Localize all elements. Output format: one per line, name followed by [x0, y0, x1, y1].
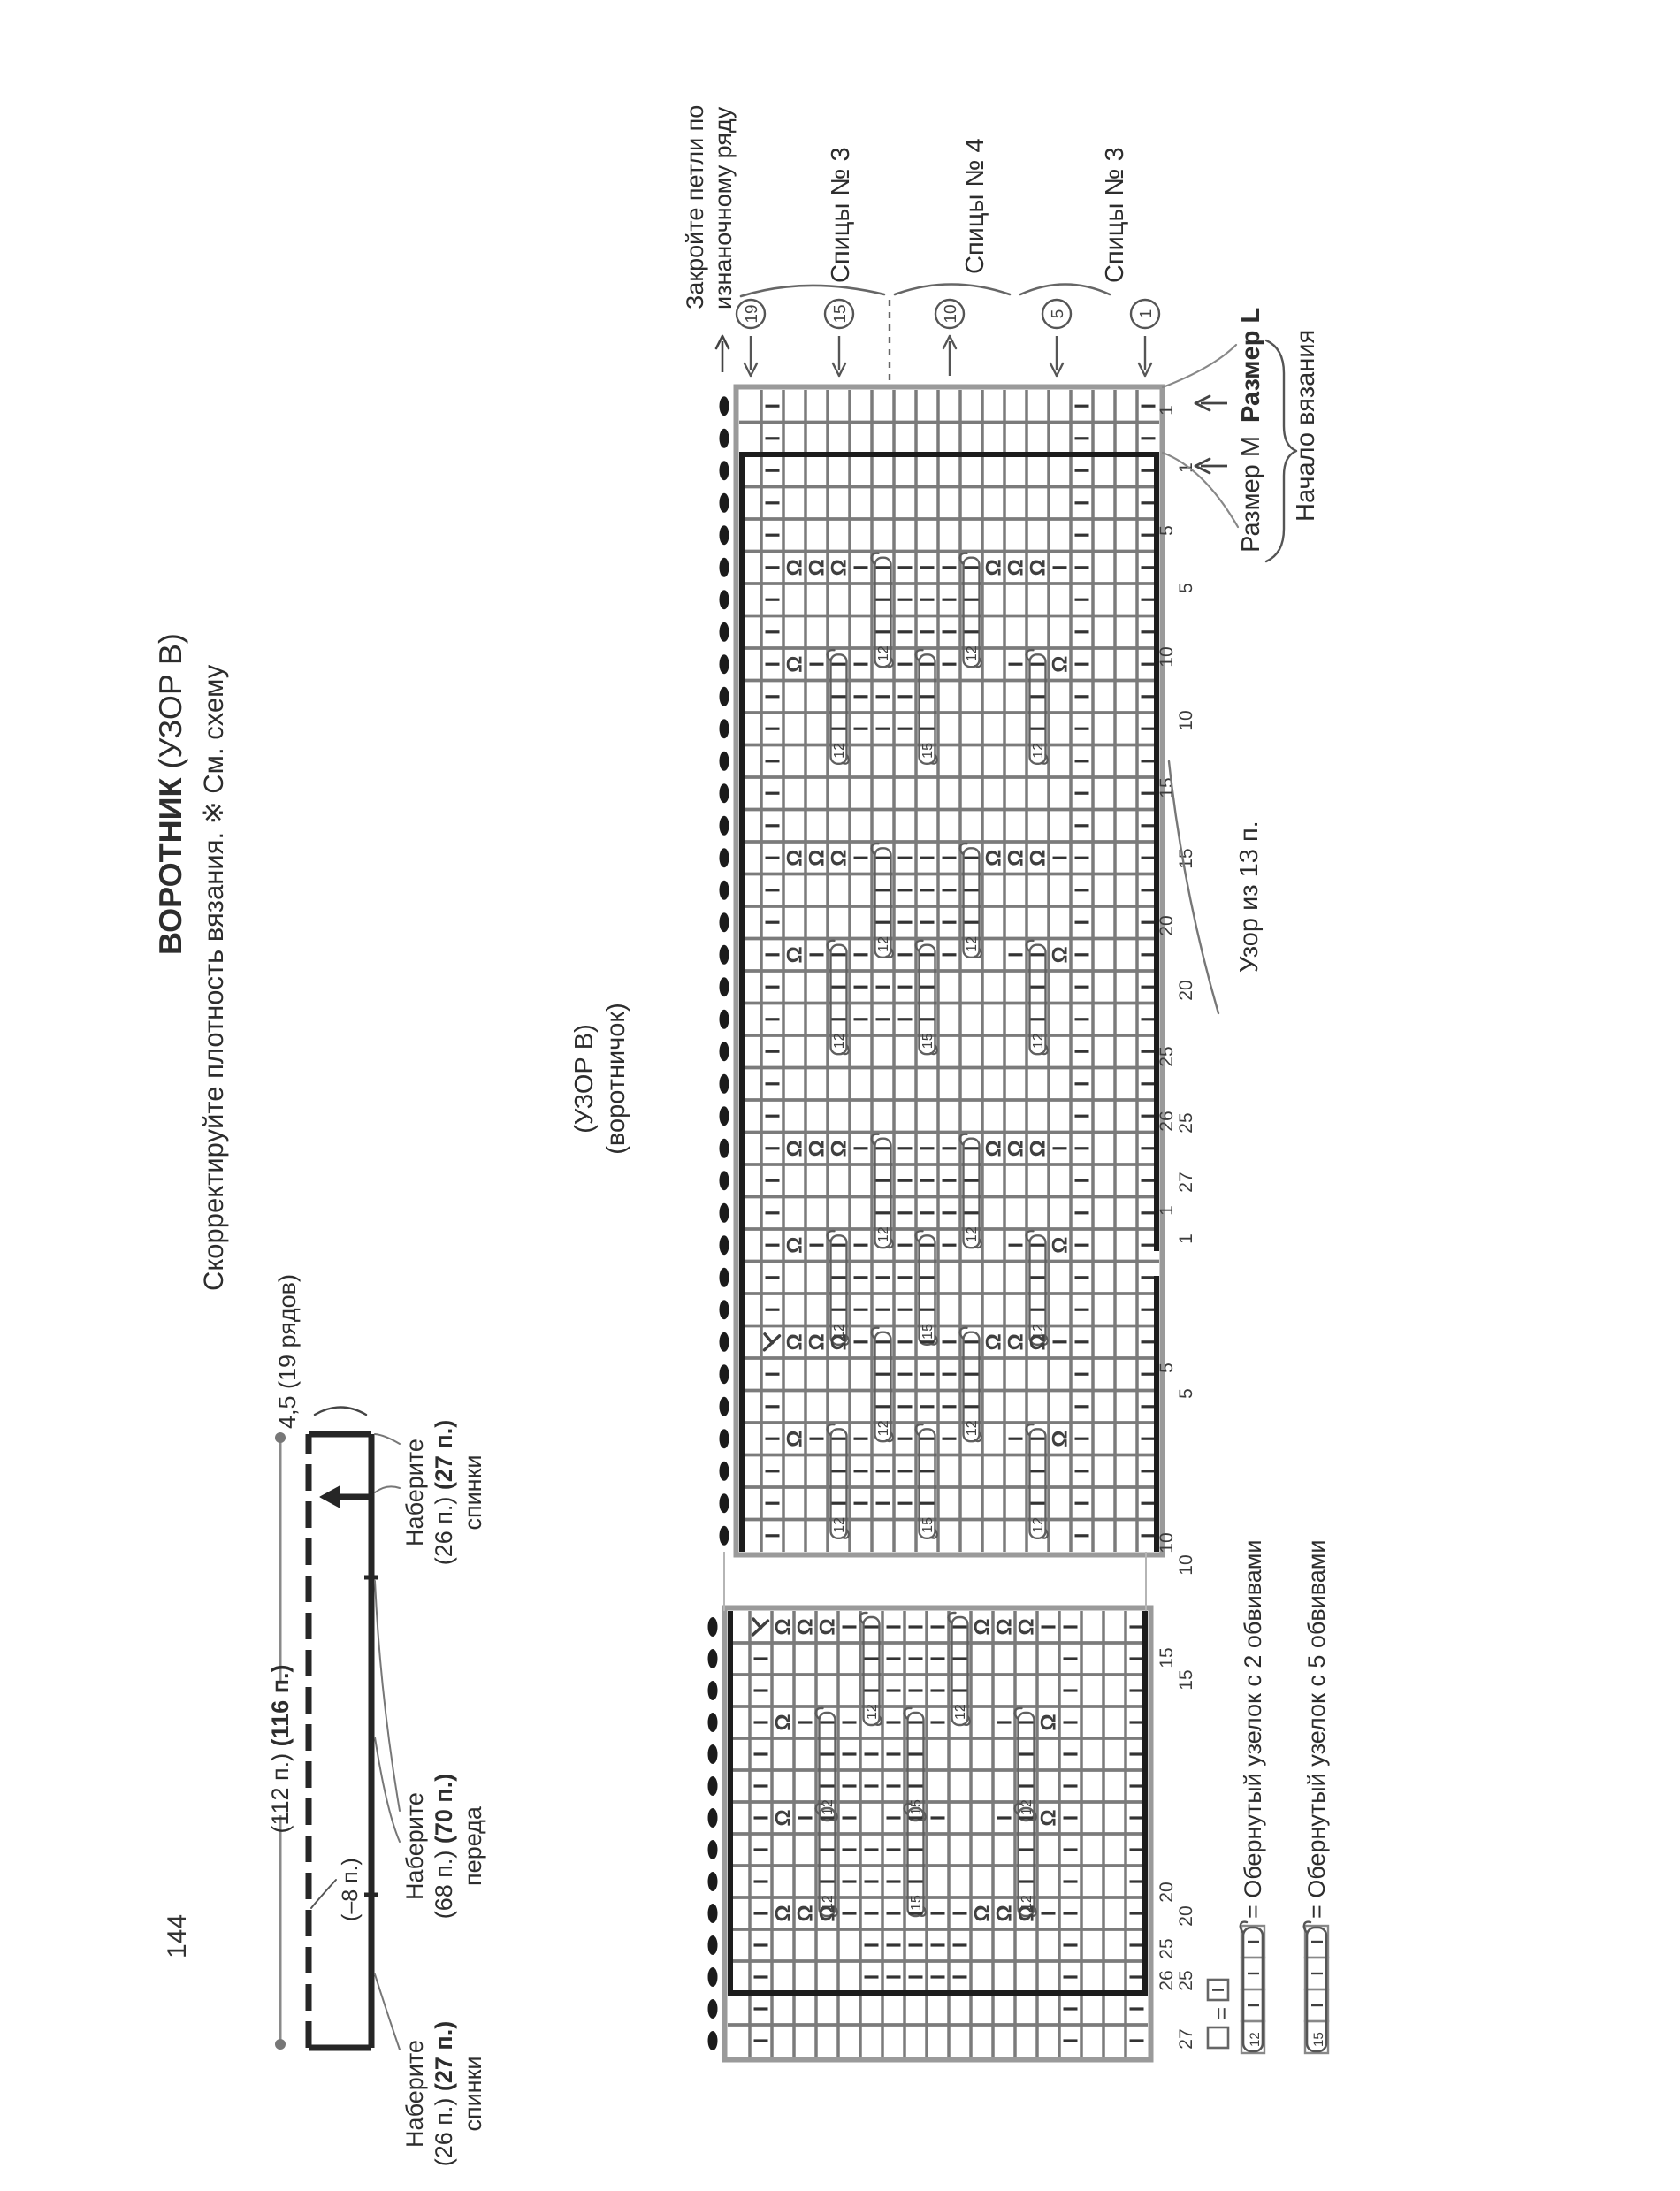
svg-text:15: 15 — [909, 1895, 924, 1911]
svg-text:Ω: Ω — [783, 1333, 807, 1350]
svg-text:Ω: Ω — [783, 1140, 807, 1157]
svg-text:12: 12 — [832, 1517, 847, 1533]
svg-text:Ω: Ω — [1049, 656, 1073, 673]
svg-text:Ω: Ω — [1049, 1237, 1073, 1254]
svg-text:Ω: Ω — [806, 559, 829, 576]
svg-text:Ω: Ω — [828, 850, 851, 866]
svg-text:Ω: Ω — [816, 1905, 840, 1921]
svg-text:12: 12 — [965, 1420, 980, 1436]
svg-text:12: 12 — [832, 743, 847, 759]
svg-text:19: 19 — [743, 304, 761, 323]
svg-text:Ω: Ω — [971, 1618, 995, 1635]
svg-text:15: 15 — [920, 1517, 935, 1533]
svg-text:(26 п.) (27 п.): (26 п.) (27 п.) — [431, 2021, 457, 2166]
svg-text:10: 10 — [1157, 646, 1177, 667]
svg-text:Ω: Ω — [971, 1905, 995, 1921]
svg-text:10: 10 — [1157, 1532, 1177, 1553]
svg-text:Ω: Ω — [1037, 1714, 1061, 1730]
svg-text:= Обернутый узелок с 5 обвивам: = Обернутый узелок с 5 обвивами — [1303, 1540, 1330, 1919]
svg-text:Ω: Ω — [806, 850, 829, 866]
svg-text:Ω: Ω — [1027, 1140, 1050, 1157]
svg-text:(воротничок): (воротничок) — [602, 1003, 630, 1155]
svg-text:4,5 (19 рядов): 4,5 (19 рядов) — [274, 1274, 301, 1429]
svg-text:Ω: Ω — [783, 946, 807, 963]
svg-text:Ω: Ω — [794, 1905, 818, 1921]
svg-text:12: 12 — [953, 1704, 968, 1720]
svg-text:Ω: Ω — [1049, 946, 1073, 963]
svg-text:Ω: Ω — [772, 1809, 796, 1826]
svg-text:25: 25 — [1157, 1046, 1177, 1066]
svg-text:(26 п.) (27 п.): (26 п.) (27 п.) — [431, 1420, 457, 1565]
svg-text:25: 25 — [1176, 1970, 1196, 1990]
svg-text:5: 5 — [1176, 583, 1196, 593]
svg-text:Узор из 13 п.: Узор из 13 п. — [1235, 821, 1264, 973]
svg-text:= Обернутый узелок с 2 обвивам: = Обернутый узелок с 2 обвивами — [1240, 1540, 1266, 1919]
svg-text:12: 12 — [1031, 743, 1046, 759]
svg-text:15: 15 — [920, 743, 935, 759]
svg-text:Ω: Ω — [783, 850, 807, 866]
svg-text:спинки: спинки — [460, 1454, 486, 1530]
svg-text:5: 5 — [1157, 1363, 1177, 1373]
svg-text:12: 12 — [1031, 1033, 1046, 1049]
svg-text:15: 15 — [831, 304, 850, 323]
svg-text:Ω: Ω — [806, 1333, 829, 1350]
svg-text:26: 26 — [1157, 1111, 1177, 1131]
svg-text:Ω: Ω — [1027, 559, 1050, 576]
svg-text:20: 20 — [1157, 915, 1177, 935]
svg-text:Ω: Ω — [816, 1618, 840, 1635]
svg-text:144: 144 — [163, 1914, 192, 1958]
svg-text:15: 15 — [1176, 1669, 1196, 1690]
svg-text:10: 10 — [942, 304, 960, 323]
svg-text:26: 26 — [1157, 1970, 1177, 1990]
svg-text:Ω: Ω — [1015, 1618, 1039, 1635]
svg-text:Ω: Ω — [1049, 1431, 1073, 1447]
svg-text:Ω: Ω — [982, 850, 1006, 866]
svg-text:ВОРОТНИК (УЗОР В): ВОРОТНИК (УЗОР В) — [152, 633, 188, 955]
svg-text:12: 12 — [876, 1420, 891, 1436]
svg-text:10: 10 — [1176, 1554, 1196, 1575]
svg-text:15: 15 — [1311, 2032, 1326, 2047]
svg-text:1: 1 — [1157, 405, 1177, 416]
svg-text:20: 20 — [1176, 980, 1196, 1000]
svg-text:Спицы № 4: Спицы № 4 — [961, 138, 989, 274]
svg-text:12: 12 — [832, 1033, 847, 1049]
svg-text:Ω: Ω — [772, 1905, 796, 1921]
svg-text:Ω: Ω — [772, 1714, 796, 1730]
svg-text:Ω: Ω — [772, 1618, 796, 1635]
svg-text:1: 1 — [1137, 309, 1156, 319]
svg-text:Ω: Ω — [993, 1905, 1017, 1921]
svg-text:15: 15 — [1176, 848, 1196, 868]
svg-text:Ω: Ω — [982, 1140, 1006, 1157]
svg-text:Ω: Ω — [1004, 1333, 1028, 1350]
svg-text:Ω: Ω — [1004, 559, 1028, 576]
svg-text:изнаночному ряду: изнаночному ряду — [710, 106, 737, 309]
svg-text:Ω: Ω — [783, 656, 807, 673]
svg-text:Ω: Ω — [783, 559, 807, 576]
svg-text:12: 12 — [965, 645, 980, 661]
svg-text:1: 1 — [1176, 1233, 1196, 1244]
svg-text:Ω: Ω — [783, 1237, 807, 1254]
svg-text:Скорректируйте плотность вязан: Скорректируйте плотность вязания. ※ См. … — [198, 664, 229, 1291]
svg-text:(68 п.) (70 п.): (68 п.) (70 п.) — [431, 1774, 457, 1919]
svg-text:Размер M: Размер M — [1237, 436, 1265, 553]
svg-text:12: 12 — [876, 645, 891, 661]
svg-text:Начало вязания: Начало вязания — [1292, 330, 1320, 522]
svg-text:(112 п.) (116 п.): (112 п.) (116 п.) — [267, 1664, 294, 1833]
svg-text:Ω: Ω — [1015, 1905, 1039, 1921]
svg-text:12: 12 — [1031, 1517, 1046, 1533]
svg-text:Ω: Ω — [828, 559, 851, 576]
svg-text:12: 12 — [965, 936, 980, 952]
svg-text:1: 1 — [1157, 1205, 1177, 1216]
svg-text:Ω: Ω — [1004, 1140, 1028, 1157]
svg-text:20: 20 — [1176, 1905, 1196, 1926]
svg-text:Ω: Ω — [1004, 850, 1028, 866]
svg-text:Ω: Ω — [982, 559, 1006, 576]
svg-text:27: 27 — [1176, 2028, 1196, 2049]
svg-text:Ω: Ω — [828, 1140, 851, 1157]
svg-text:25: 25 — [1157, 1938, 1177, 1958]
svg-text:5: 5 — [1049, 309, 1067, 319]
svg-text:(–8 п.): (–8 п.) — [338, 1858, 363, 1921]
svg-text:Ω: Ω — [1027, 1333, 1050, 1350]
svg-text:27: 27 — [1176, 1172, 1196, 1192]
svg-text:Ω: Ω — [783, 1431, 807, 1447]
svg-text:(УЗОР В): (УЗОР В) — [570, 1024, 599, 1134]
svg-text:Закройте петли по: Закройте петли по — [682, 105, 708, 309]
svg-text:20: 20 — [1157, 1882, 1177, 1902]
svg-text:25: 25 — [1176, 1112, 1196, 1133]
svg-text:Ω: Ω — [1037, 1809, 1061, 1826]
svg-text:Спицы № 3: Спицы № 3 — [1101, 147, 1129, 283]
svg-text:Ω: Ω — [794, 1618, 818, 1635]
svg-text:12: 12 — [876, 1226, 891, 1242]
svg-text:5: 5 — [1157, 525, 1177, 536]
svg-text:Ω: Ω — [1027, 850, 1050, 866]
svg-text:Спицы № 3: Спицы № 3 — [827, 147, 855, 283]
svg-text:Размер L: Размер L — [1237, 308, 1265, 423]
svg-text:5: 5 — [1176, 1388, 1196, 1399]
svg-text:Ω: Ω — [828, 1333, 851, 1350]
svg-text:Наберите: Наберите — [401, 1792, 428, 1900]
svg-text:12: 12 — [865, 1704, 880, 1720]
svg-text:15: 15 — [920, 1324, 935, 1340]
svg-text:10: 10 — [1176, 710, 1196, 730]
svg-text:Наберите: Наберите — [401, 1439, 428, 1546]
svg-text:спинки: спинки — [460, 2056, 486, 2131]
svg-text:Ω: Ω — [993, 1618, 1017, 1635]
svg-text:12: 12 — [1248, 2032, 1263, 2047]
svg-text:12: 12 — [876, 936, 891, 952]
svg-text:Ω: Ω — [806, 1140, 829, 1157]
svg-text:12: 12 — [965, 1226, 980, 1242]
svg-text:15: 15 — [920, 1033, 935, 1049]
svg-text:Наберите: Наберите — [401, 2040, 428, 2148]
svg-text:=: = — [1208, 2007, 1234, 2020]
svg-text:15: 15 — [1157, 1647, 1177, 1668]
svg-text:Ω: Ω — [982, 1333, 1006, 1350]
svg-text:переда: переда — [460, 1805, 486, 1886]
